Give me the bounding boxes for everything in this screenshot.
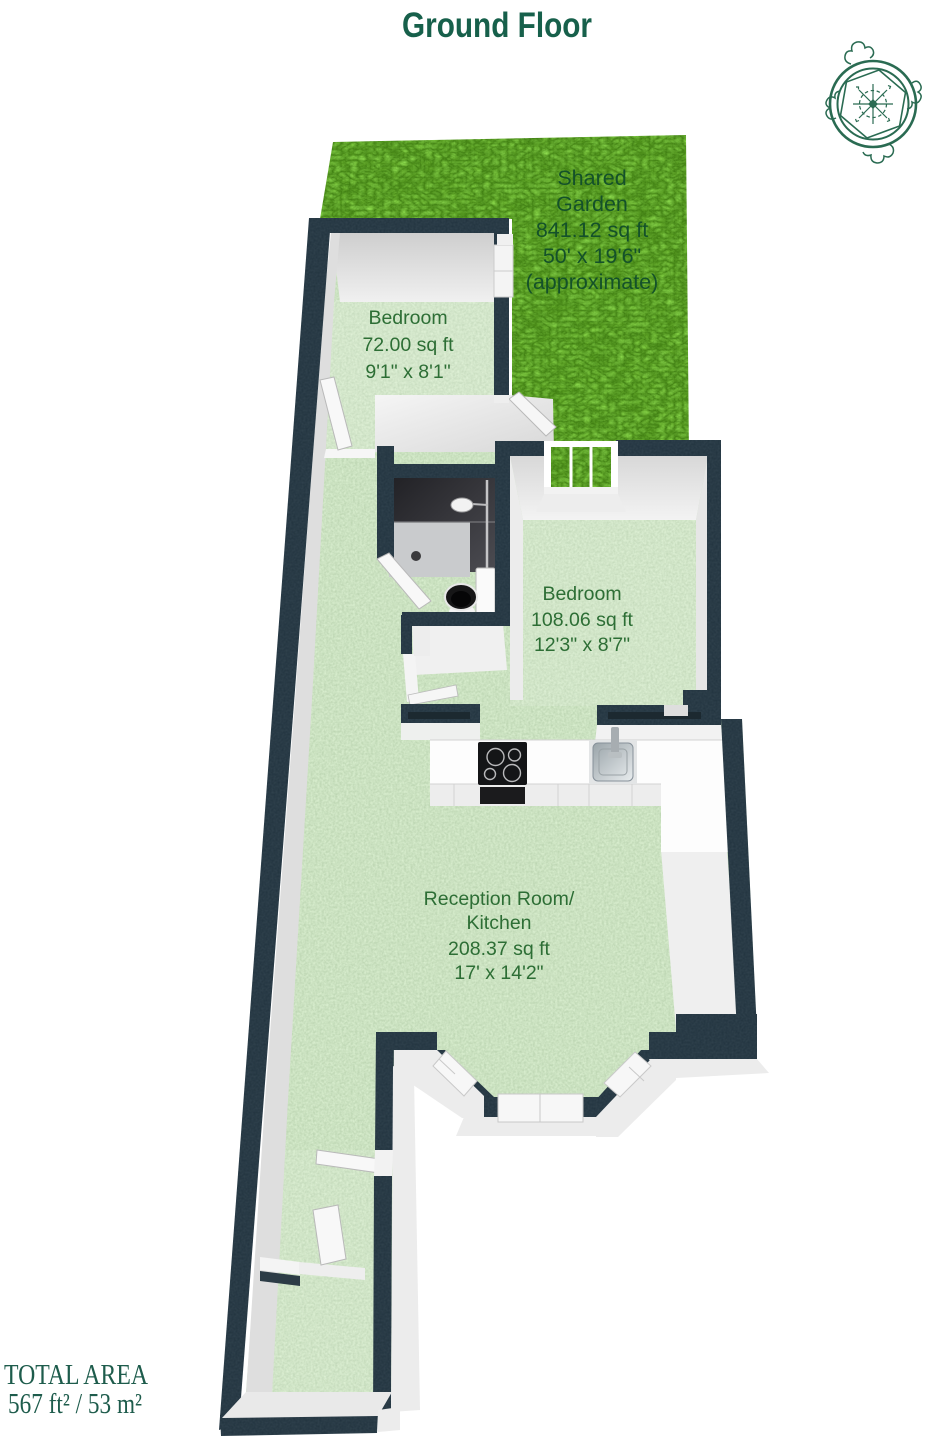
- svg-text:567 ft² / 53 m²: 567 ft² / 53 m²: [8, 1388, 142, 1420]
- svg-text:Bedroom: Bedroom: [542, 583, 621, 605]
- svg-text:9'1" x 8'1": 9'1" x 8'1": [365, 361, 450, 383]
- svg-text:TOTAL AREA: TOTAL AREA: [4, 1359, 148, 1391]
- svg-text:108.06 sq ft: 108.06 sq ft: [531, 609, 633, 631]
- svg-text:Ground Floor: Ground Floor: [402, 6, 592, 45]
- svg-text:208.37 sq ft: 208.37 sq ft: [448, 938, 550, 960]
- svg-text:17' x 14'2": 17' x 14'2": [454, 962, 543, 984]
- svg-text:(approximate): (approximate): [526, 270, 659, 294]
- svg-text:72.00 sq ft: 72.00 sq ft: [362, 334, 454, 356]
- svg-text:Reception Room/: Reception Room/: [424, 888, 575, 910]
- svg-text:Garden: Garden: [556, 192, 628, 216]
- svg-text:12'3" x 8'7": 12'3" x 8'7": [534, 634, 630, 656]
- svg-text:Bedroom: Bedroom: [368, 307, 447, 329]
- svg-text:Shared: Shared: [557, 166, 626, 190]
- svg-text:841.12 sq ft: 841.12 sq ft: [536, 218, 648, 242]
- svg-text:Kitchen: Kitchen: [466, 912, 531, 934]
- svg-text:50' x 19'6": 50' x 19'6": [543, 244, 641, 268]
